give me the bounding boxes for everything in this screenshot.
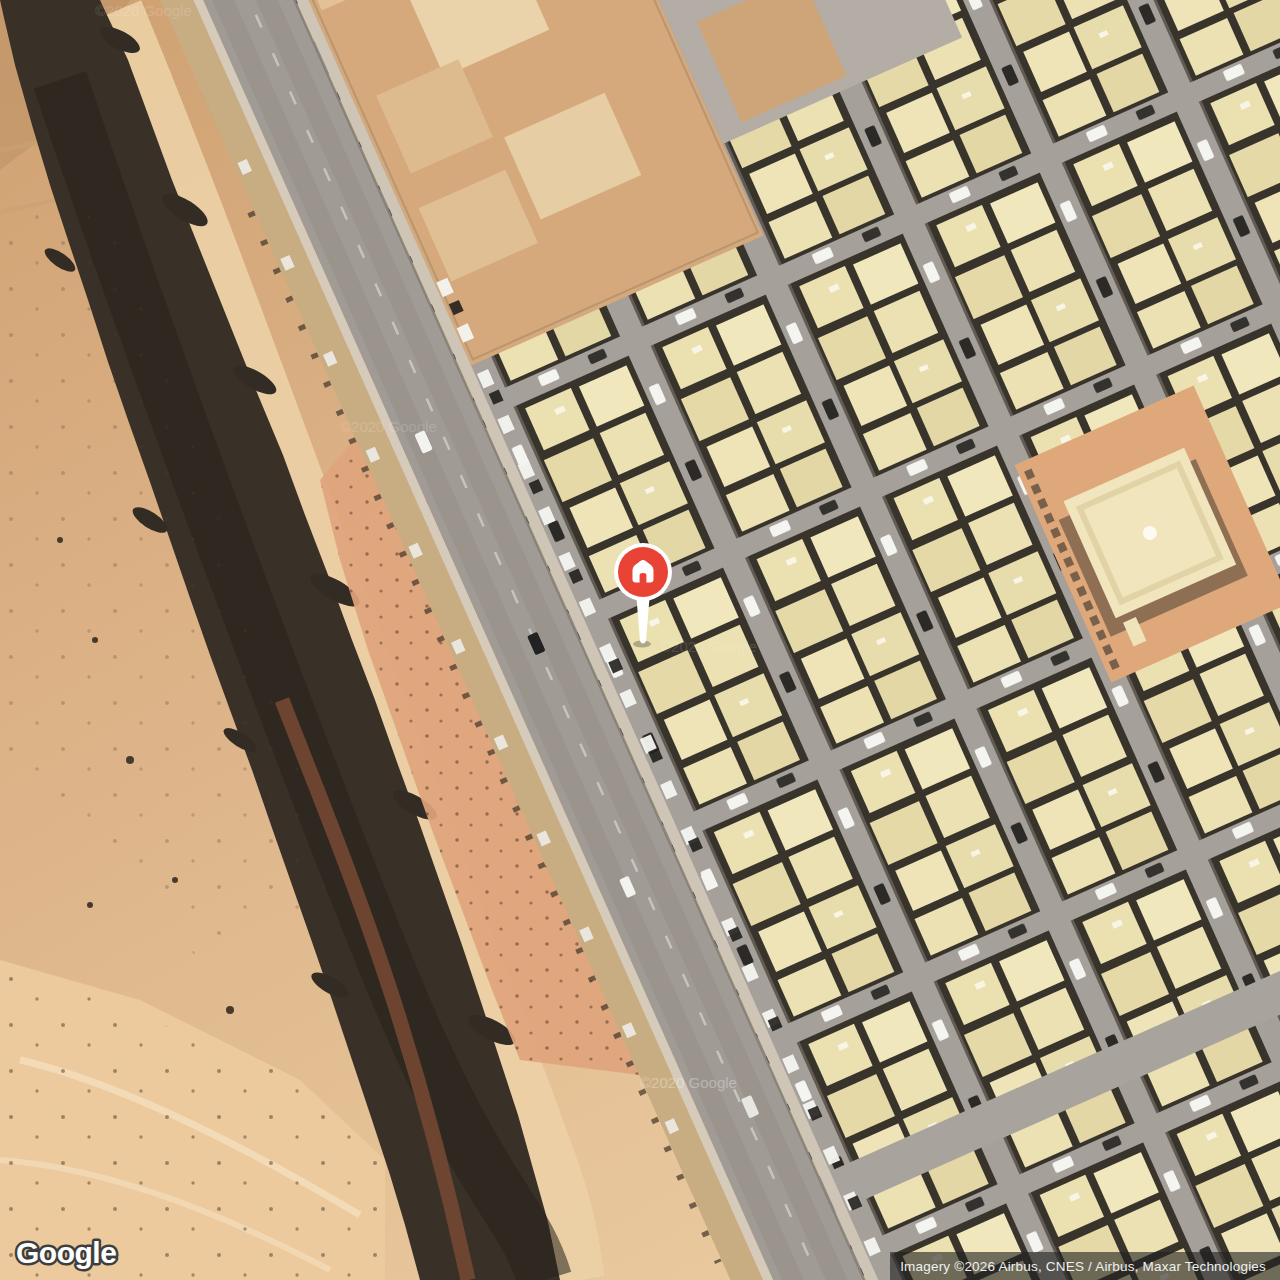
google-logo[interactable]: Google — [16, 1236, 116, 1269]
watermark: ©2020 Google — [95, 2, 192, 19]
attribution-text: Imagery ©2026 Airbus, CNES / Airbus, Max… — [900, 1259, 1266, 1274]
satellite-canvas: ©2020 Google ©2020 Google ©2020 Google ©… — [0, 0, 1280, 1280]
map-viewport[interactable]: ©2020 Google ©2020 Google ©2020 Google ©… — [0, 0, 1280, 1280]
watermark: ©2020 Google — [340, 418, 437, 435]
attribution-bar: Imagery ©2026 Airbus, CNES / Airbus, Max… — [890, 1252, 1280, 1280]
watermark: ©2020 Google — [660, 638, 757, 655]
watermark: ©2020 Google — [640, 1074, 737, 1091]
